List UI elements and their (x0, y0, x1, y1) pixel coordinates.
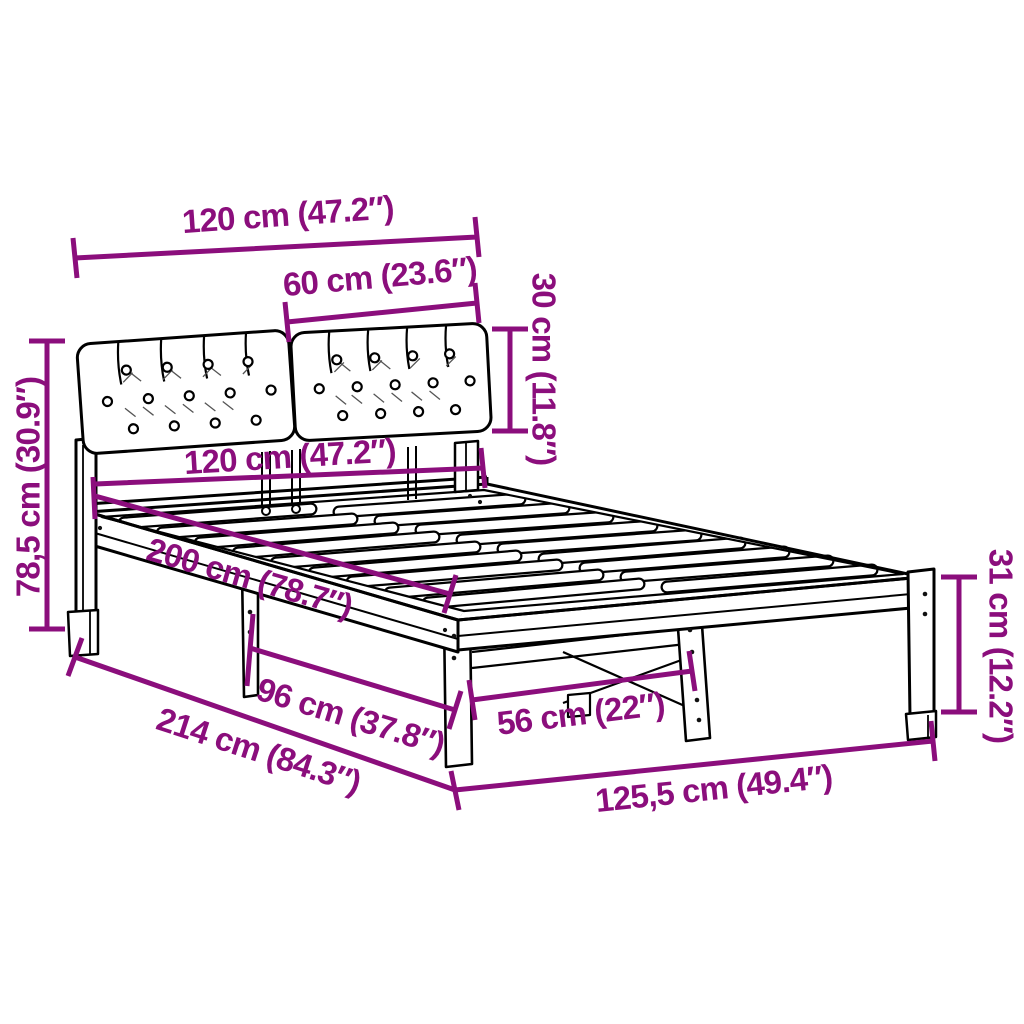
headboard-left-post-foot (68, 610, 98, 656)
dim-label-headboard-height: 78,5 cm (30.9″) (10, 377, 47, 597)
dim-label-total-width: 125,5 cm (49.4″) (594, 757, 834, 819)
strap-bracket (262, 507, 270, 515)
headboard-left-post (76, 438, 96, 614)
dim-label-leg-height: 31 cm (12.2″) (982, 549, 1019, 743)
dim-line-leg-height (941, 577, 977, 712)
dim-label-headboard-width: 120 cm (47.2″) (181, 188, 395, 240)
dim-line-cushion-height (492, 329, 528, 431)
diagram-canvas: 120 cm (47.2″) 60 cm (23.6″) 30 cm (11.8… (0, 0, 1024, 1024)
headboard-cushion-left (76, 330, 295, 455)
dim-label-cushion-height: 30 cm (11.8″) (525, 273, 562, 466)
dim-label-cushion-width: 60 cm (23.6″) (281, 249, 478, 303)
headboard-cushion-right (290, 323, 491, 441)
strap-bracket (292, 505, 300, 513)
leg-foot-right-corner (906, 569, 936, 740)
bed-dimension-diagram: 120 cm (47.2″) 60 cm (23.6″) 30 cm (11.8… (0, 0, 1024, 1024)
